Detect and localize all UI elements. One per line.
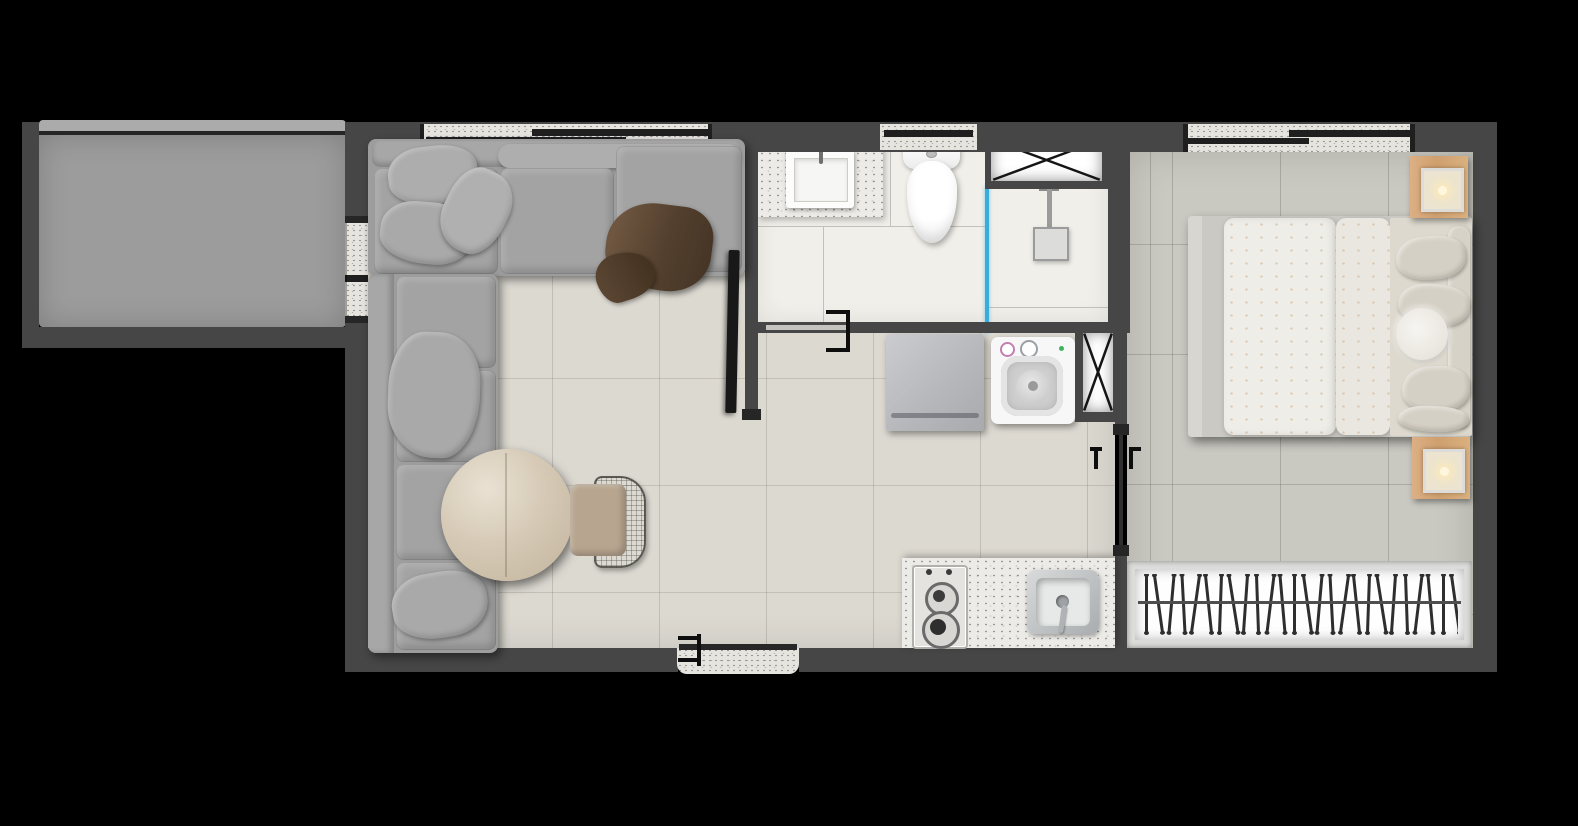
clothes-hanger-icon [1167, 575, 1175, 633]
bathroom-sliding-door [766, 325, 848, 330]
burner-small-center [933, 590, 945, 602]
cooktop-knob [926, 569, 932, 575]
door-rail [345, 275, 368, 282]
sofa-cushion [500, 168, 614, 274]
clothes-hanger-icon [1265, 575, 1275, 633]
left-wall-upper [345, 122, 368, 223]
throw-pillow [386, 330, 482, 459]
window-pane [1410, 124, 1415, 152]
vanity-sink-basin [794, 158, 848, 202]
shower-head [1033, 227, 1069, 261]
washer-agitator [1028, 381, 1038, 391]
duct-shaft-side [1083, 332, 1113, 412]
fur-pillow [1396, 308, 1448, 360]
living-bathroom-divider-wall [745, 122, 758, 420]
door-handle-mark [678, 636, 700, 640]
clothes-hanger-icon [1145, 575, 1148, 633]
wardrobe-rail [1138, 601, 1461, 604]
wall-end-cap [1113, 545, 1129, 556]
balcony-left-wall [22, 122, 39, 348]
clothes-hanger-icon [1302, 575, 1313, 633]
door-edge [345, 223, 347, 316]
clothes-hanger-icon [1442, 575, 1445, 633]
clothes-hanger-icon [1413, 575, 1423, 633]
wall-end-cap [742, 409, 761, 420]
washer-dial-pink [1000, 342, 1015, 357]
clothes-hanger-icon [1450, 575, 1458, 633]
bed-footboard [1188, 216, 1202, 437]
left-wall-lower [345, 316, 368, 672]
table-marble-seam [505, 453, 507, 577]
wire-chair-seat [570, 484, 626, 556]
clothes-hanger-icon [1204, 575, 1213, 633]
sofa-left-backrest [368, 274, 394, 653]
bedroom-window [1183, 124, 1415, 152]
clothes-hanger-icon [1427, 575, 1435, 633]
refrigerator-handle [891, 413, 979, 418]
clothes-hanger-icon [1366, 575, 1371, 633]
clothes-hanger-icon [1181, 575, 1187, 633]
clothes-hanger-icon [1255, 575, 1260, 633]
clothes-hanger-icon [1153, 575, 1164, 633]
washer-indicator-green [1059, 346, 1064, 351]
clothes-hanger-icon [1316, 575, 1324, 633]
bathroom-window [880, 124, 977, 150]
clothes-hanger-icon [1190, 575, 1201, 633]
clothes-hanger-icon [1352, 575, 1361, 633]
clothes-hanger-icon [1293, 575, 1296, 633]
bathroom-tile-line [890, 140, 891, 226]
clothes-hanger-icon [1375, 575, 1387, 633]
clothes-hanger-icon [1218, 575, 1223, 633]
bathroom-tile-line [823, 227, 824, 322]
crossed-shaft-icon [1083, 332, 1113, 412]
burner-large-center [930, 619, 946, 635]
floor-plan [0, 0, 1578, 826]
bedroom-sliding-door [1119, 435, 1123, 545]
wall-end-cap [1113, 424, 1129, 435]
clothes-hanger-icon [1329, 575, 1335, 633]
door-handle-mark [1129, 447, 1141, 451]
balcony-floor [39, 135, 346, 327]
clothes-hanger-icon [1278, 575, 1286, 633]
clothes-hanger-icon [1390, 575, 1397, 633]
clothes-hanger-icon [1242, 575, 1249, 633]
window-sliding-pane [1289, 130, 1413, 137]
bed-duvet [1224, 218, 1336, 435]
table-lamp-icon [1421, 168, 1464, 212]
door-stop-mark [826, 310, 848, 314]
window-sliding-pane [884, 130, 973, 137]
door-handle-mark [1090, 447, 1102, 451]
door-stop-mark [846, 310, 850, 352]
window-sliding-pane [1187, 138, 1309, 144]
wall-end-cap [345, 216, 368, 223]
clothes-hanger-icon [1404, 575, 1409, 633]
table-lamp-icon [1423, 449, 1465, 493]
bathroom-tile-line [989, 307, 1108, 308]
bedroom-west-wall-lower [1115, 556, 1127, 648]
shower-column-pipe [1047, 189, 1052, 231]
wall-end-cap [345, 316, 368, 323]
closet-hangers [1141, 574, 1458, 636]
bed-duvet [1336, 218, 1390, 435]
cooktop-knob [946, 569, 952, 575]
right-wall [1473, 122, 1497, 672]
bedroom-west-wall-upper [1115, 333, 1127, 424]
round-dining-table [441, 449, 573, 581]
clothes-hanger-icon [1227, 575, 1239, 633]
balcony-bottom-wall [22, 327, 371, 348]
clothes-hanger-icon [1339, 575, 1350, 633]
bottom-wall-right [799, 648, 1497, 672]
balcony-sliding-door [345, 223, 368, 316]
window-sliding-pane [532, 129, 708, 136]
bathroom-tile-line [758, 226, 985, 227]
door-stop-mark [826, 348, 848, 352]
shower-glass-divider [985, 186, 989, 333]
bathroom-right-wall [1108, 122, 1130, 333]
door-handle-mark [678, 658, 700, 662]
